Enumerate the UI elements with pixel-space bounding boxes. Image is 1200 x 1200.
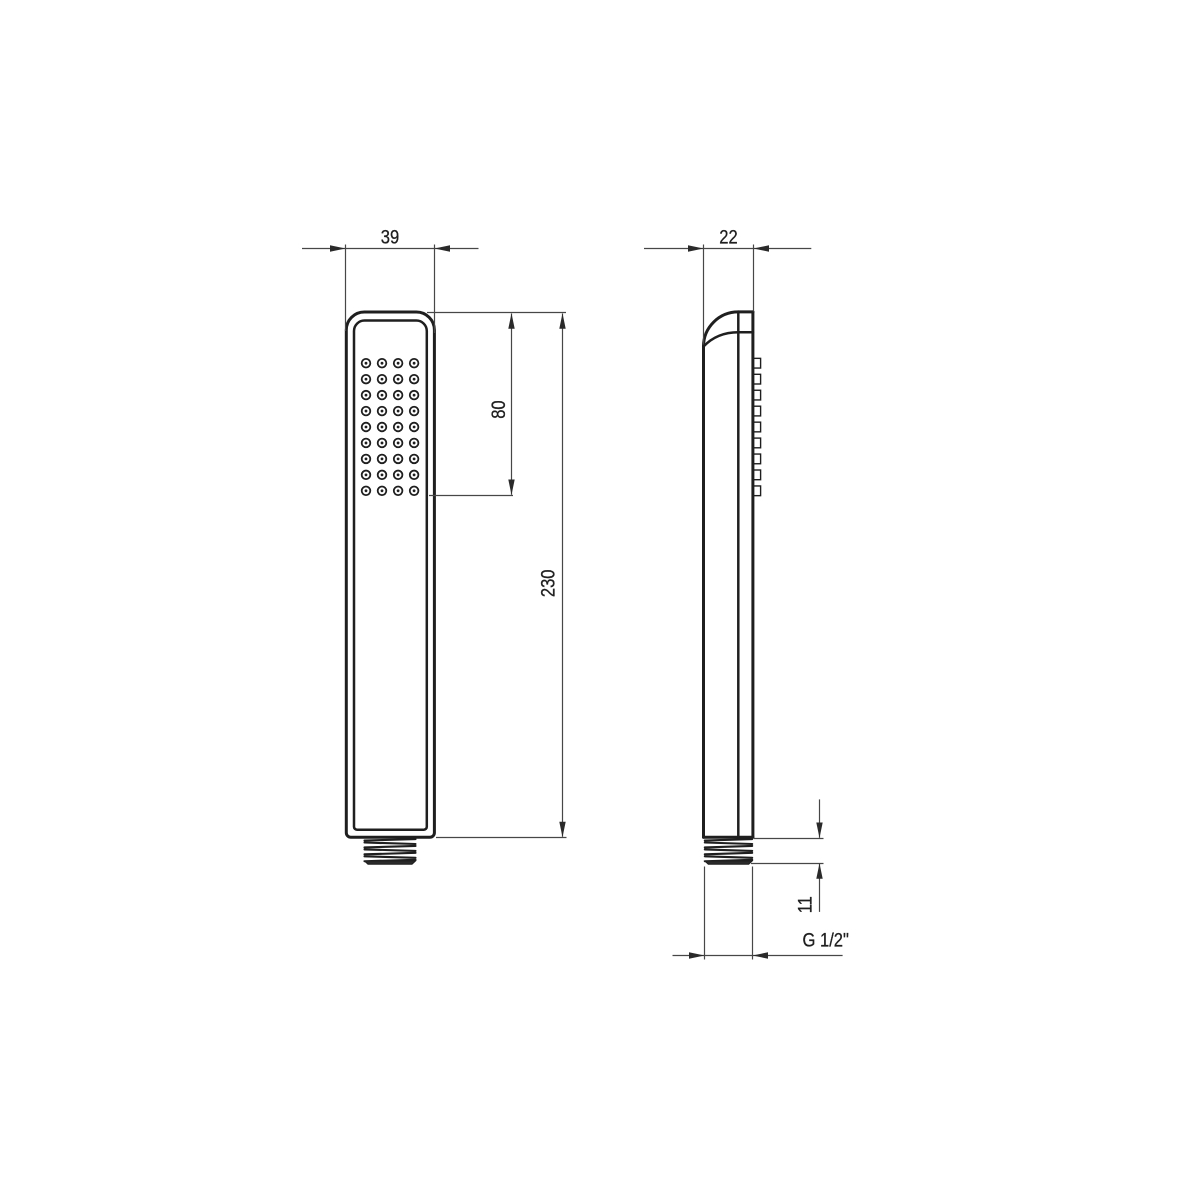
svg-text:G 1/2": G 1/2" <box>803 929 849 951</box>
svg-text:230: 230 <box>537 569 559 597</box>
svg-text:11: 11 <box>794 896 816 913</box>
svg-text:39: 39 <box>381 226 399 248</box>
svg-text:80: 80 <box>488 400 510 418</box>
svg-text:22: 22 <box>719 226 737 248</box>
